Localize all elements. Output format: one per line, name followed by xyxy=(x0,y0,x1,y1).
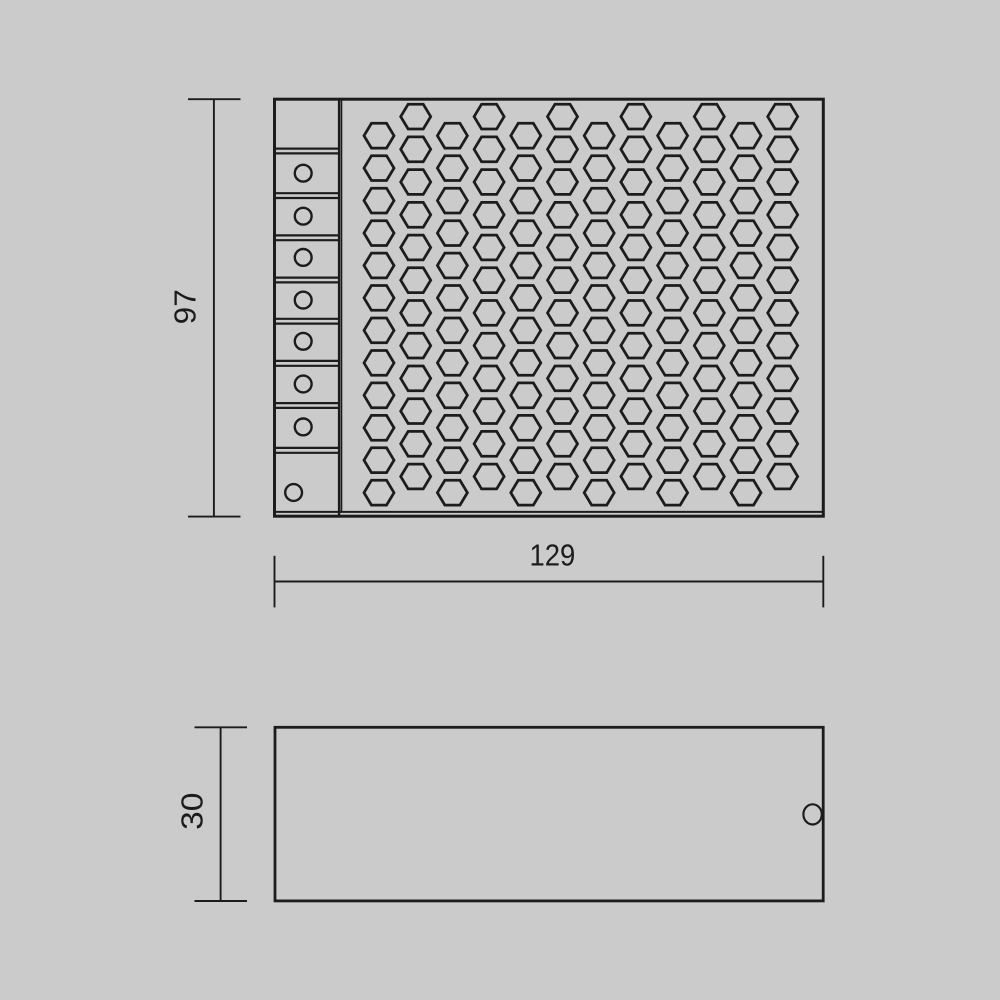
svg-text:97: 97 xyxy=(168,289,203,324)
svg-text:30: 30 xyxy=(175,793,210,830)
svg-text:129: 129 xyxy=(530,537,576,572)
